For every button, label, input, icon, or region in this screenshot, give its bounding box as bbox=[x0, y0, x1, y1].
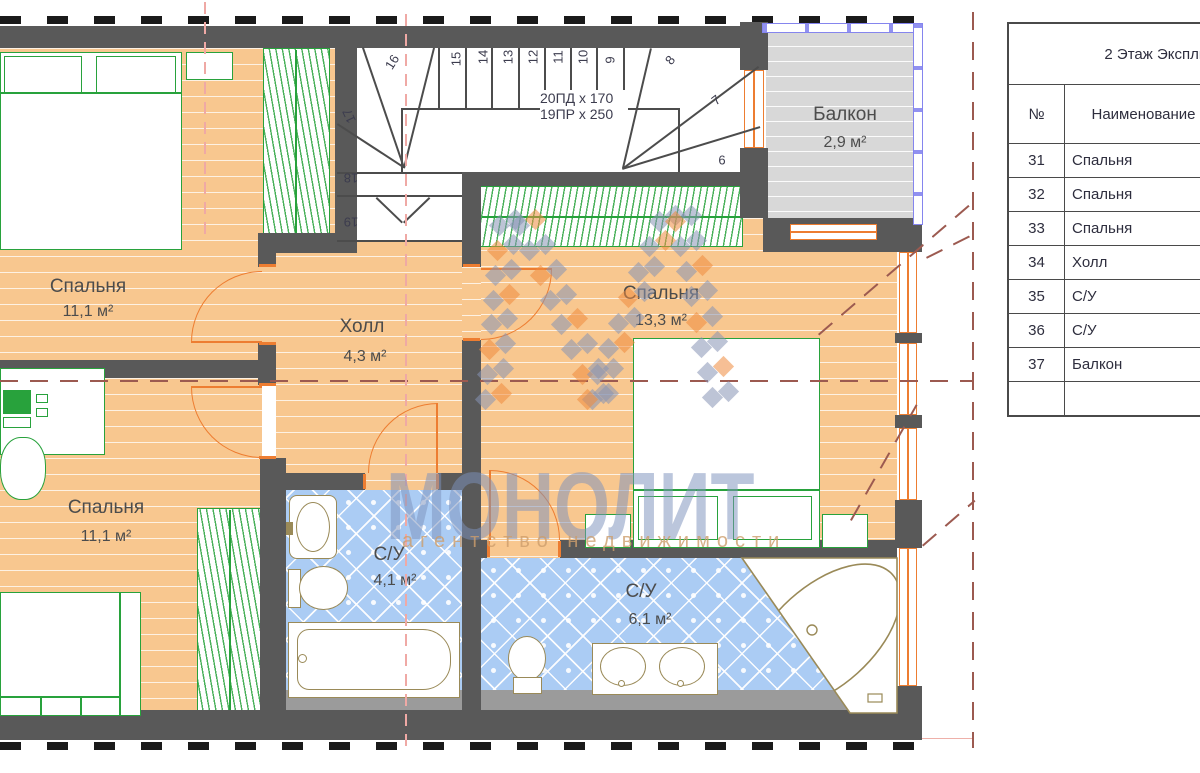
row-number: 32 bbox=[1009, 178, 1064, 211]
axis-dashed-line bbox=[406, 14, 408, 750]
stair-step-number: 13 bbox=[501, 50, 516, 64]
row-room-name: Спальня bbox=[1064, 144, 1200, 177]
wall bbox=[462, 186, 481, 267]
bathtub-basin bbox=[297, 629, 451, 690]
room-name: Спальня bbox=[50, 276, 126, 298]
stair-step-number: 14 bbox=[476, 50, 491, 64]
wall bbox=[258, 233, 357, 253]
desk-box bbox=[36, 408, 48, 417]
stair-tread-line bbox=[466, 48, 468, 108]
faucet-icon bbox=[618, 680, 625, 687]
stair-tread-line bbox=[492, 48, 494, 108]
stair-tread-line bbox=[337, 240, 462, 242]
room-area: 2,9 м² bbox=[823, 134, 866, 152]
balcony-railing bbox=[762, 23, 923, 33]
corner-bathtub bbox=[740, 556, 900, 716]
window bbox=[899, 343, 917, 415]
table-row: 36С/У bbox=[1009, 313, 1200, 347]
row-room-name: Спальня bbox=[1064, 212, 1200, 245]
table-row: 33Спальня bbox=[1009, 211, 1200, 245]
row-room-name: Балкон bbox=[1064, 348, 1200, 381]
row-number: 34 bbox=[1009, 246, 1064, 279]
room-area: 11,1 м² bbox=[63, 303, 114, 321]
door-jamb bbox=[259, 264, 276, 267]
faucet-icon bbox=[677, 680, 684, 687]
stair-tread-line bbox=[439, 48, 441, 108]
row-room-name: Спальня bbox=[1064, 178, 1200, 211]
row-number: 35 bbox=[1009, 280, 1064, 313]
stair-step-number: 9 bbox=[603, 56, 618, 63]
door-leaf bbox=[191, 386, 262, 388]
toilet-bowl bbox=[299, 566, 348, 610]
axis-dashed-line bbox=[205, 2, 207, 237]
room-name: Балкон bbox=[813, 104, 877, 126]
row-room-name bbox=[1064, 382, 1200, 415]
table-header-name: Наименование bbox=[1064, 85, 1200, 143]
stair-step-number: 15 bbox=[449, 52, 464, 66]
sofa-cushion-line bbox=[40, 696, 42, 716]
exterior-hatch bbox=[0, 742, 920, 750]
watermark-subtitle: агентство недвижимости bbox=[402, 530, 786, 553]
row-room-name: С/У bbox=[1064, 280, 1200, 313]
room-name: Холл bbox=[340, 316, 385, 338]
blanket-line bbox=[0, 92, 182, 94]
table-row: 31Спальня bbox=[1009, 143, 1200, 177]
armchair bbox=[0, 437, 46, 500]
row-number: 36 bbox=[1009, 314, 1064, 347]
window bbox=[744, 70, 764, 148]
stair-step-number: 12 bbox=[526, 50, 541, 64]
room-area: 4,3 м² bbox=[343, 348, 386, 366]
stair-tread-line bbox=[679, 108, 681, 172]
wall bbox=[0, 26, 765, 48]
door-jamb bbox=[463, 264, 480, 267]
wall bbox=[740, 148, 768, 218]
stair-step-number: 19 bbox=[344, 215, 358, 230]
desk-box bbox=[36, 394, 48, 403]
wall bbox=[276, 473, 365, 490]
faucet-icon bbox=[286, 522, 293, 535]
keyboard bbox=[3, 417, 31, 428]
computer-monitor bbox=[3, 390, 31, 414]
stair-step-number: 18 bbox=[344, 171, 358, 186]
wall bbox=[462, 172, 765, 186]
table-row: 35С/У bbox=[1009, 279, 1200, 313]
table-row: 34Холл bbox=[1009, 245, 1200, 279]
toilet-bowl bbox=[508, 636, 546, 681]
wall bbox=[895, 500, 922, 548]
stair-note-line2: 19ПР x 250 bbox=[540, 106, 628, 122]
table-row: 32Спальня bbox=[1009, 177, 1200, 211]
stair-step-number: 6 bbox=[718, 153, 725, 168]
nightstand bbox=[186, 52, 233, 80]
row-number bbox=[1009, 382, 1064, 415]
table-header-row: № Наименование bbox=[1009, 84, 1200, 143]
table-title: 2 Этаж Экспликация bbox=[1009, 24, 1200, 84]
stair-tread-line bbox=[519, 48, 521, 108]
table-header-num: № bbox=[1009, 85, 1064, 143]
stair-tread-line bbox=[337, 195, 462, 197]
door-threshold bbox=[462, 267, 481, 340]
window bbox=[790, 224, 877, 240]
room-area: 6,1 м² bbox=[628, 611, 671, 629]
pillow bbox=[4, 56, 82, 93]
row-number: 37 bbox=[1009, 348, 1064, 381]
wall bbox=[270, 473, 286, 712]
stair-step-number: 11 bbox=[551, 50, 566, 64]
door-leaf bbox=[191, 341, 262, 343]
window bbox=[899, 548, 917, 686]
explication-table: 2 Этаж Экспликация № Наименование 31Спал… bbox=[1007, 22, 1200, 417]
stair-note-line1: 20ПД x 170 bbox=[540, 90, 628, 106]
sofa-cushion-line bbox=[80, 696, 82, 716]
room-area: 4,1 м² bbox=[373, 572, 416, 590]
window bbox=[899, 428, 917, 500]
row-number: 31 bbox=[1009, 144, 1064, 177]
wardrobe-rail bbox=[295, 50, 297, 235]
table-row: 37Балкон bbox=[1009, 347, 1200, 381]
bathtub-drain bbox=[298, 654, 307, 663]
nightstand bbox=[822, 514, 868, 548]
room-name: С/У bbox=[625, 581, 656, 603]
room-area: 11,1 м² bbox=[81, 528, 132, 546]
row-room-name: Холл bbox=[1064, 246, 1200, 279]
door-jamb bbox=[363, 474, 366, 489]
wardrobe-rail bbox=[229, 510, 231, 714]
pillow bbox=[96, 56, 176, 93]
table-row bbox=[1009, 381, 1200, 415]
floor-plan-page: 20ПД x 170 19ПР x 250 МОНОЛИТ агентство … bbox=[0, 0, 1200, 773]
sofa-seat-line bbox=[0, 696, 120, 698]
balcony-railing bbox=[913, 23, 923, 225]
sink-basin bbox=[296, 502, 330, 552]
row-room-name: С/У bbox=[1064, 314, 1200, 347]
room-name: Спальня bbox=[68, 497, 144, 519]
wall bbox=[895, 333, 922, 343]
toilet-tank bbox=[513, 677, 542, 694]
roof-outline-dashed-line bbox=[922, 500, 975, 546]
stair-step-number: 10 bbox=[576, 50, 591, 64]
door-jamb bbox=[463, 338, 480, 341]
stair-specification: 20ПД x 170 19ПР x 250 bbox=[540, 90, 628, 122]
row-number: 33 bbox=[1009, 212, 1064, 245]
